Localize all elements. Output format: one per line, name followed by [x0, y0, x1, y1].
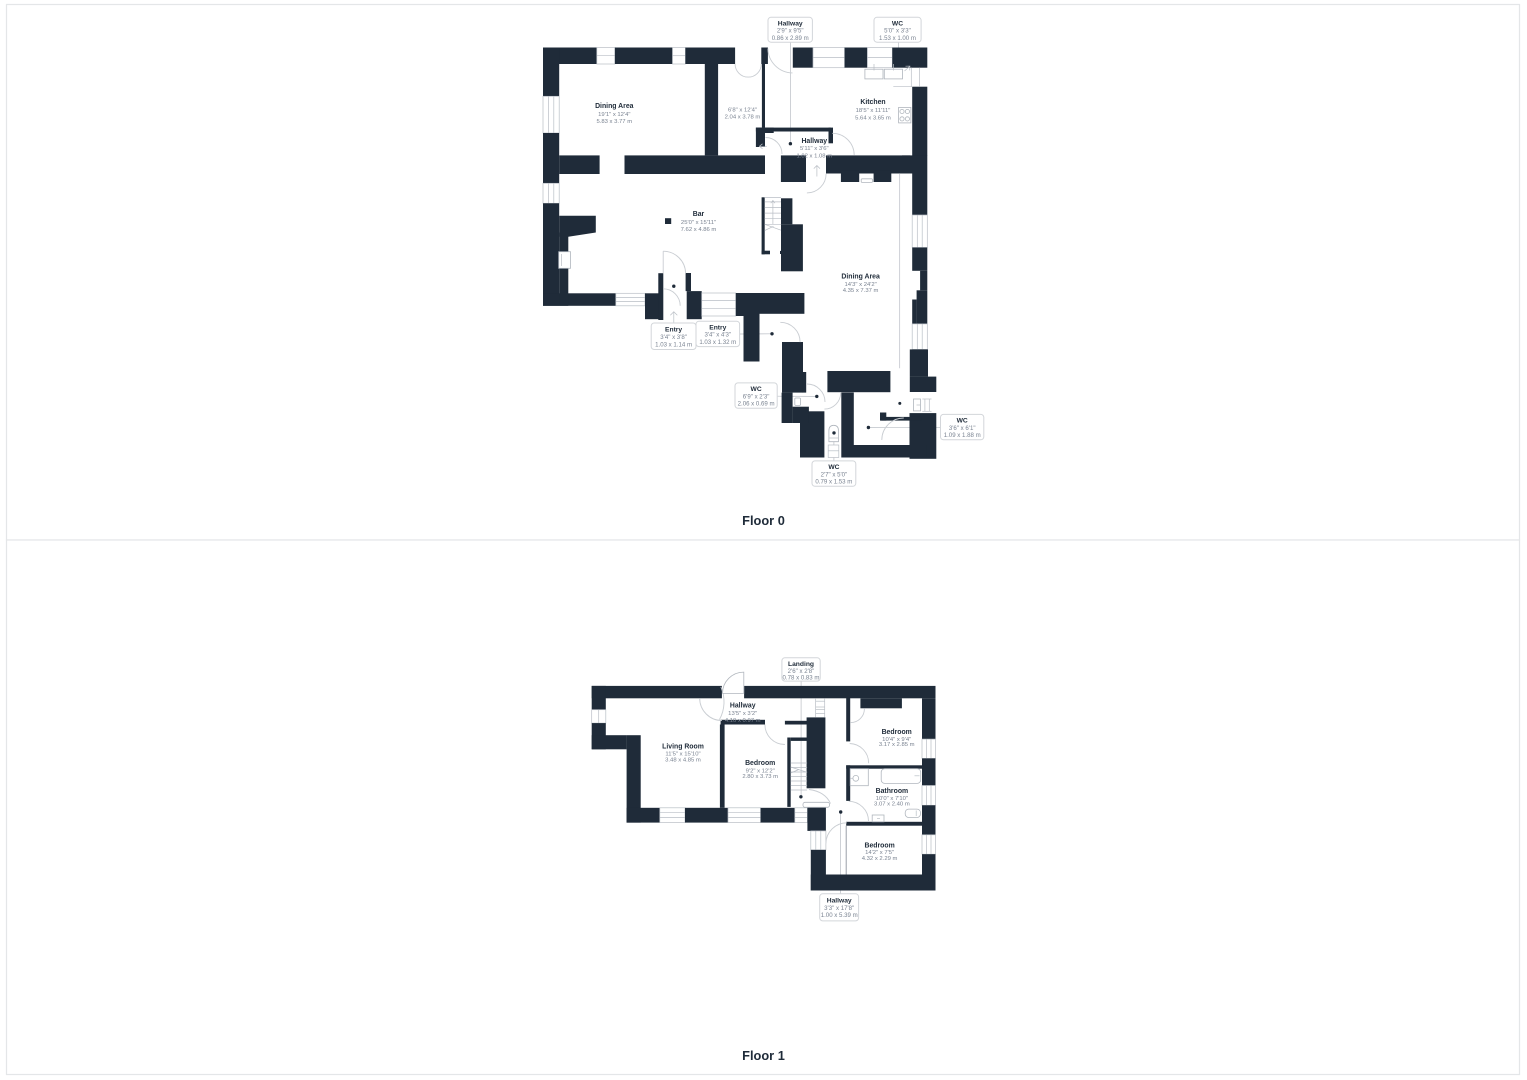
svg-text:7.62 x 4.86 m: 7.62 x 4.86 m — [681, 227, 717, 233]
svg-text:Dining Area: Dining Area — [595, 103, 634, 110]
svg-text:3'3" x 17'8": 3'3" x 17'8" — [824, 905, 854, 912]
svg-text:WC: WC — [828, 464, 839, 471]
svg-text:Floor 1: Floor 1 — [742, 1048, 785, 1063]
svg-text:1.03 x 1.14 m: 1.03 x 1.14 m — [655, 341, 692, 348]
svg-text:2.04 x 3.78 m: 2.04 x 3.78 m — [725, 115, 761, 121]
svg-text:5.64 x 3.65 m: 5.64 x 3.65 m — [855, 115, 891, 121]
svg-text:5'11" x 3'6": 5'11" x 3'6" — [800, 146, 829, 152]
svg-text:3.17 x 2.85 m: 3.17 x 2.85 m — [879, 742, 915, 748]
svg-text:Bedroom: Bedroom — [882, 729, 912, 736]
svg-text:5'0" x 3'3": 5'0" x 3'3" — [884, 28, 911, 35]
svg-text:3.07 x 2.40 m: 3.07 x 2.40 m — [874, 802, 910, 808]
svg-text:18'5" x 11'11": 18'5" x 11'11" — [856, 108, 891, 114]
svg-text:3'4" x 4'3": 3'4" x 4'3" — [704, 332, 731, 339]
svg-text:1.00 x 5.39 m: 1.00 x 5.39 m — [821, 912, 858, 919]
svg-text:WC: WC — [892, 20, 903, 27]
svg-text:Bathroom: Bathroom — [876, 788, 909, 795]
svg-text:Bedroom: Bedroom — [864, 842, 894, 849]
svg-text:1.03 x 1.32 m: 1.03 x 1.32 m — [699, 339, 736, 346]
svg-text:2.80 x 3.73 m: 2.80 x 3.73 m — [742, 774, 778, 780]
svg-text:1.53 x 1.00 m: 1.53 x 1.00 m — [879, 35, 916, 42]
svg-text:WC: WC — [957, 418, 968, 425]
svg-text:1.09 x 1.88 m: 1.09 x 1.88 m — [944, 432, 981, 439]
svg-text:3'6" x 6'1": 3'6" x 6'1" — [949, 425, 976, 432]
svg-text:2.06 x 0.69 m: 2.06 x 0.69 m — [738, 401, 775, 408]
svg-text:5.83 x 3.77 m: 5.83 x 3.77 m — [596, 119, 632, 125]
svg-text:2'7" x 5'0": 2'7" x 5'0" — [821, 471, 848, 478]
svg-text:6'8" x 12'4": 6'8" x 12'4" — [728, 108, 757, 114]
svg-text:Dining Area: Dining Area — [841, 274, 880, 281]
svg-text:3.48 x 4.85 m: 3.48 x 4.85 m — [665, 757, 701, 763]
svg-text:Bedroom: Bedroom — [745, 760, 775, 767]
svg-text:19'1" x 12'4": 19'1" x 12'4" — [598, 112, 630, 118]
svg-text:Living Room: Living Room — [662, 743, 704, 750]
svg-text:0.86 x 2.89 m: 0.86 x 2.89 m — [772, 35, 809, 42]
svg-text:25'0" x 15'11": 25'0" x 15'11" — [681, 220, 716, 226]
svg-text:0.79 x 1.53 m: 0.79 x 1.53 m — [815, 479, 852, 486]
svg-text:4.10 x 0.97 m: 4.10 x 0.97 m — [725, 718, 761, 724]
svg-text:WC: WC — [751, 386, 762, 393]
svg-text:2'9" x 9'5": 2'9" x 9'5" — [777, 28, 804, 35]
svg-text:Landing: Landing — [788, 661, 814, 668]
svg-text:Hallway: Hallway — [801, 138, 827, 145]
svg-text:14'3" x 24'2": 14'3" x 24'2" — [844, 282, 876, 288]
svg-text:Hallway: Hallway — [778, 20, 803, 27]
svg-text:6'9" x 2'3": 6'9" x 2'3" — [743, 393, 770, 400]
svg-text:Entry: Entry — [709, 324, 726, 331]
svg-text:1.82 x 1.08 m: 1.82 x 1.08 m — [796, 153, 832, 159]
svg-text:Floor 0: Floor 0 — [742, 513, 785, 528]
svg-text:Hallway: Hallway — [730, 703, 756, 710]
svg-text:Hallway: Hallway — [827, 897, 852, 904]
svg-text:4.32 x 2.29 m: 4.32 x 2.29 m — [862, 856, 898, 862]
svg-text:4.35 x 7.37 m: 4.35 x 7.37 m — [843, 288, 879, 294]
svg-text:Bar: Bar — [693, 211, 705, 218]
svg-text:0.78 x 0.83 m: 0.78 x 0.83 m — [783, 674, 820, 681]
svg-text:3'4" x 3'8": 3'4" x 3'8" — [660, 334, 687, 341]
svg-text:Entry: Entry — [665, 327, 682, 334]
svg-text:Kitchen: Kitchen — [860, 99, 885, 106]
svg-text:13'5" x 3'2": 13'5" x 3'2" — [728, 711, 757, 717]
